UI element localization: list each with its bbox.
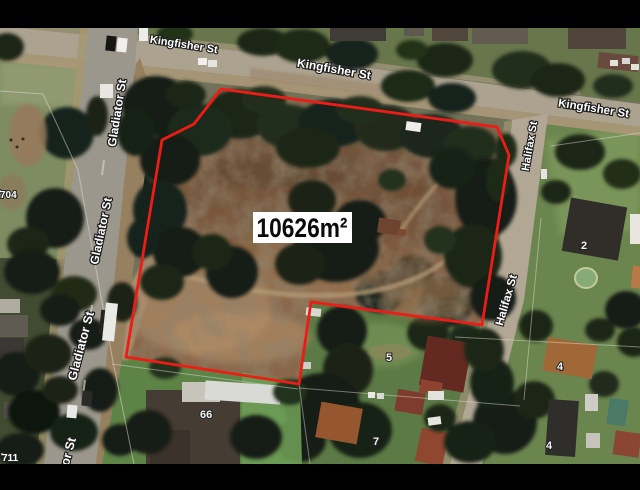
svg-text:2: 2 bbox=[581, 240, 587, 252]
svg-text:66: 66 bbox=[200, 409, 212, 421]
svg-text:4: 4 bbox=[546, 440, 553, 452]
svg-text:̽711: ̽711 bbox=[0, 452, 19, 464]
svg-text:7: 7 bbox=[373, 436, 379, 448]
svg-text:4: 4 bbox=[557, 361, 564, 373]
svg-text:5: 5 bbox=[386, 352, 392, 364]
svg-text:10626m²: 10626m² bbox=[257, 213, 348, 243]
svg-text:̽704: ̽704 bbox=[0, 189, 17, 201]
